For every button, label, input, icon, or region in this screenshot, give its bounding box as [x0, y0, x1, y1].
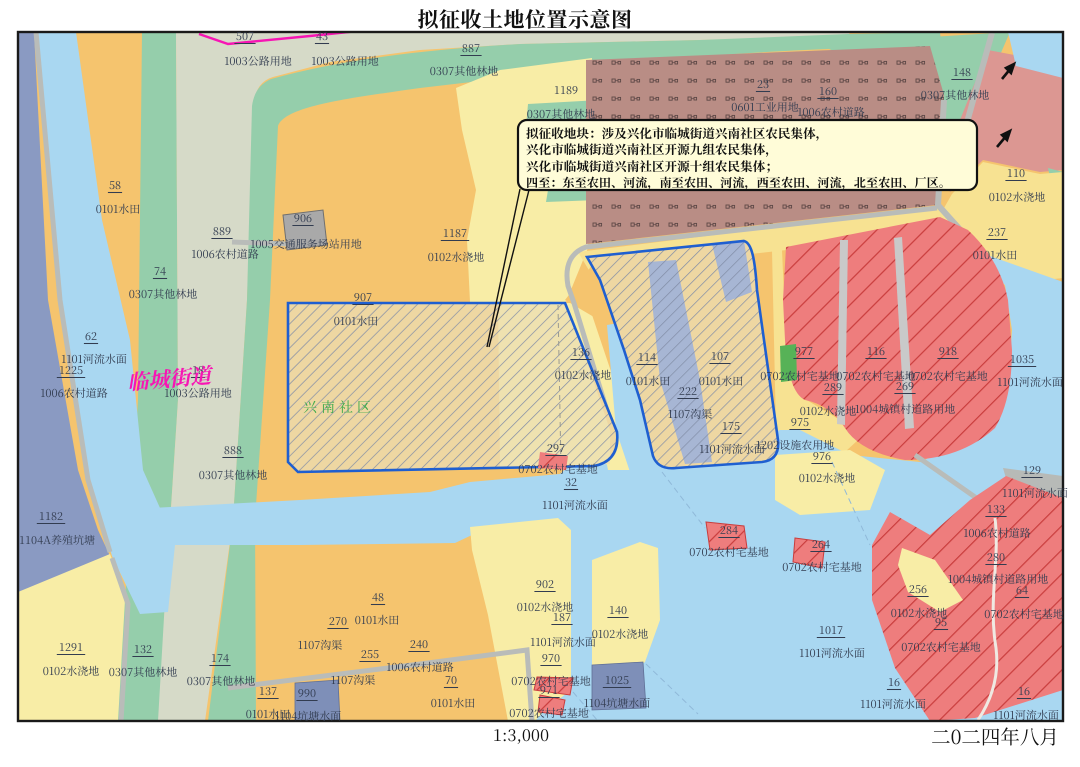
svg-text:976: 976 [813, 448, 831, 464]
svg-text:132: 132 [134, 641, 152, 657]
svg-text:拟征收土地位置示意图: 拟征收土地位置示意图 [418, 4, 633, 34]
svg-text:1005交通服务场站用地: 1005交通服务场站用地 [250, 236, 362, 252]
svg-text:0101水田: 0101水田 [334, 313, 379, 329]
svg-text:970: 970 [542, 650, 560, 666]
svg-text:0102水浇地: 0102水浇地 [43, 663, 100, 679]
svg-text:74: 74 [154, 263, 166, 279]
svg-text:1107沟渠: 1107沟渠 [298, 637, 343, 653]
svg-text:1:3,000: 1:3,000 [493, 722, 549, 746]
svg-text:0307其他林地: 0307其他林地 [129, 286, 197, 302]
svg-text:907: 907 [354, 289, 372, 305]
svg-text:0101水田: 0101水田 [355, 612, 400, 628]
svg-text:280: 280 [987, 549, 1005, 565]
svg-text:0102水浇地: 0102水浇地 [428, 249, 485, 265]
svg-text:237: 237 [988, 224, 1006, 240]
svg-text:二0二四年八月: 二0二四年八月 [931, 722, 1059, 750]
svg-text:62: 62 [85, 328, 97, 344]
svg-text:297: 297 [547, 440, 565, 456]
svg-text:1004城镇村道路用地: 1004城镇村道路用地 [948, 571, 1049, 587]
svg-text:0702农村宅基地: 0702农村宅基地 [901, 639, 980, 655]
svg-text:1101河流水面: 1101河流水面 [799, 645, 865, 661]
svg-text:0101水田: 0101水田 [973, 247, 1018, 263]
svg-text:0101水田: 0101水田 [699, 373, 744, 389]
svg-text:1225: 1225 [59, 362, 83, 378]
svg-text:269: 269 [896, 378, 914, 394]
svg-text:16: 16 [1018, 683, 1030, 699]
svg-text:1004城镇村道路用地: 1004城镇村道路用地 [855, 401, 956, 417]
svg-text:0102水浇地: 0102水浇地 [555, 367, 612, 383]
svg-text:977: 977 [795, 343, 813, 359]
svg-text:1101河流水面: 1101河流水面 [997, 374, 1063, 390]
svg-text:1035: 1035 [1010, 351, 1034, 367]
svg-text:889: 889 [213, 223, 231, 239]
svg-text:264: 264 [812, 536, 830, 552]
svg-text:23: 23 [757, 76, 769, 92]
svg-text:48: 48 [372, 589, 384, 605]
svg-text:107: 107 [711, 348, 729, 364]
svg-text:0702农村宅基地: 0702农村宅基地 [509, 705, 588, 721]
svg-text:0702农村宅基地: 0702农村宅基地 [782, 559, 861, 575]
svg-text:174: 174 [211, 650, 229, 666]
svg-text:0101水田: 0101水田 [626, 373, 671, 389]
svg-text:1182: 1182 [39, 508, 63, 524]
svg-text:140: 140 [609, 602, 627, 618]
svg-text:1006农村道路: 1006农村道路 [797, 104, 865, 120]
svg-text:1101河流水面: 1101河流水面 [542, 497, 608, 513]
svg-text:906: 906 [294, 210, 312, 226]
svg-text:0101水田: 0101水田 [96, 201, 141, 217]
svg-text:1101河流水面: 1101河流水面 [993, 707, 1059, 723]
svg-text:0102水浇地: 0102水浇地 [799, 470, 856, 486]
svg-text:148: 148 [953, 64, 971, 80]
svg-text:1006农村道路: 1006农村道路 [386, 659, 454, 675]
svg-text:270: 270 [329, 613, 347, 629]
svg-text:1101河流水面: 1101河流水面 [530, 634, 596, 650]
svg-text:1025: 1025 [605, 672, 629, 688]
svg-text:114: 114 [638, 349, 656, 365]
svg-text:289: 289 [824, 379, 842, 395]
svg-text:1104坑塘水面: 1104坑塘水面 [584, 695, 651, 711]
svg-text:1104A养殖坑塘: 1104A养殖坑塘 [19, 532, 95, 548]
svg-text:1006农村道路: 1006农村道路 [40, 385, 108, 401]
svg-text:1003公路用地: 1003公路用地 [224, 53, 292, 69]
svg-text:160: 160 [819, 83, 837, 99]
svg-text:32: 32 [565, 474, 577, 490]
svg-text:133: 133 [987, 501, 1005, 517]
svg-text:64: 64 [1016, 582, 1028, 598]
svg-text:1104坑塘水面: 1104坑塘水面 [275, 708, 342, 724]
svg-text:971: 971 [540, 682, 558, 698]
svg-text:0101水田: 0101水田 [431, 695, 476, 711]
svg-text:1101河流水面: 1101河流水面 [860, 696, 926, 712]
svg-text:1017: 1017 [819, 622, 843, 638]
svg-text:0702农村宅基地: 0702农村宅基地 [984, 606, 1063, 622]
svg-text:1107沟渠: 1107沟渠 [331, 672, 376, 688]
svg-text:507: 507 [236, 28, 254, 44]
svg-text:1107沟渠: 1107沟渠 [668, 406, 713, 422]
svg-text:137: 137 [259, 683, 277, 699]
svg-text:116: 116 [867, 343, 885, 359]
svg-text:兴化市临城街道兴南社区开源十组农民集体；: 兴化市临城街道兴南社区开源十组农民集体； [526, 156, 778, 175]
svg-text:187: 187 [553, 609, 571, 625]
svg-text:95: 95 [935, 614, 947, 630]
svg-text:888: 888 [224, 442, 242, 458]
svg-text:256: 256 [909, 581, 927, 597]
svg-text:兴南社区: 兴南社区 [303, 397, 375, 417]
svg-text:255: 255 [361, 646, 379, 662]
svg-text:43: 43 [316, 28, 328, 44]
svg-text:918: 918 [939, 343, 957, 359]
svg-text:58: 58 [109, 177, 121, 193]
svg-text:0307其他林地: 0307其他林地 [430, 63, 498, 79]
svg-text:990: 990 [298, 685, 316, 701]
svg-text:0307其他林地: 0307其他林地 [199, 467, 267, 483]
svg-text:0702农村宅基地: 0702农村宅基地 [689, 544, 768, 560]
svg-text:136: 136 [572, 344, 590, 360]
svg-text:0307其他林地: 0307其他林地 [109, 664, 177, 680]
svg-text:1006农村道路: 1006农村道路 [191, 246, 259, 262]
svg-text:129: 129 [1023, 462, 1041, 478]
svg-text:0702农村宅基地: 0702农村宅基地 [908, 368, 987, 384]
svg-text:16: 16 [888, 674, 900, 690]
svg-text:887: 887 [462, 40, 480, 56]
svg-text:1187: 1187 [443, 225, 467, 241]
svg-text:975: 975 [791, 414, 809, 430]
svg-text:0601工业用地: 0601工业用地 [731, 99, 799, 115]
svg-text:240: 240 [410, 636, 428, 652]
svg-text:1003公路用地: 1003公路用地 [311, 53, 379, 69]
svg-text:0307其他林地: 0307其他林地 [921, 87, 989, 103]
svg-text:175: 175 [722, 418, 740, 434]
svg-text:0307其他林地: 0307其他林地 [187, 673, 255, 689]
svg-text:1101河流水面: 1101河流水面 [1002, 485, 1068, 501]
svg-text:四至：东至农田、河流，南至农田、河流，西至农田、河流，北至农: 四至：东至农田、河流，南至农田、河流，西至农田、河流，北至农田、厂区。 [526, 174, 951, 191]
svg-text:1189: 1189 [554, 82, 578, 98]
svg-text:110: 110 [1007, 165, 1025, 181]
svg-text:0702农村宅基地: 0702农村宅基地 [518, 461, 597, 477]
svg-text:0102水浇地: 0102水浇地 [592, 626, 649, 642]
svg-text:1291: 1291 [59, 639, 83, 655]
svg-text:1006农村道路: 1006农村道路 [963, 525, 1031, 541]
svg-text:222: 222 [679, 383, 697, 399]
svg-text:284: 284 [720, 522, 738, 538]
svg-text:902: 902 [536, 576, 554, 592]
svg-text:0102水浇地: 0102水浇地 [989, 189, 1046, 205]
svg-text:70: 70 [445, 672, 457, 688]
